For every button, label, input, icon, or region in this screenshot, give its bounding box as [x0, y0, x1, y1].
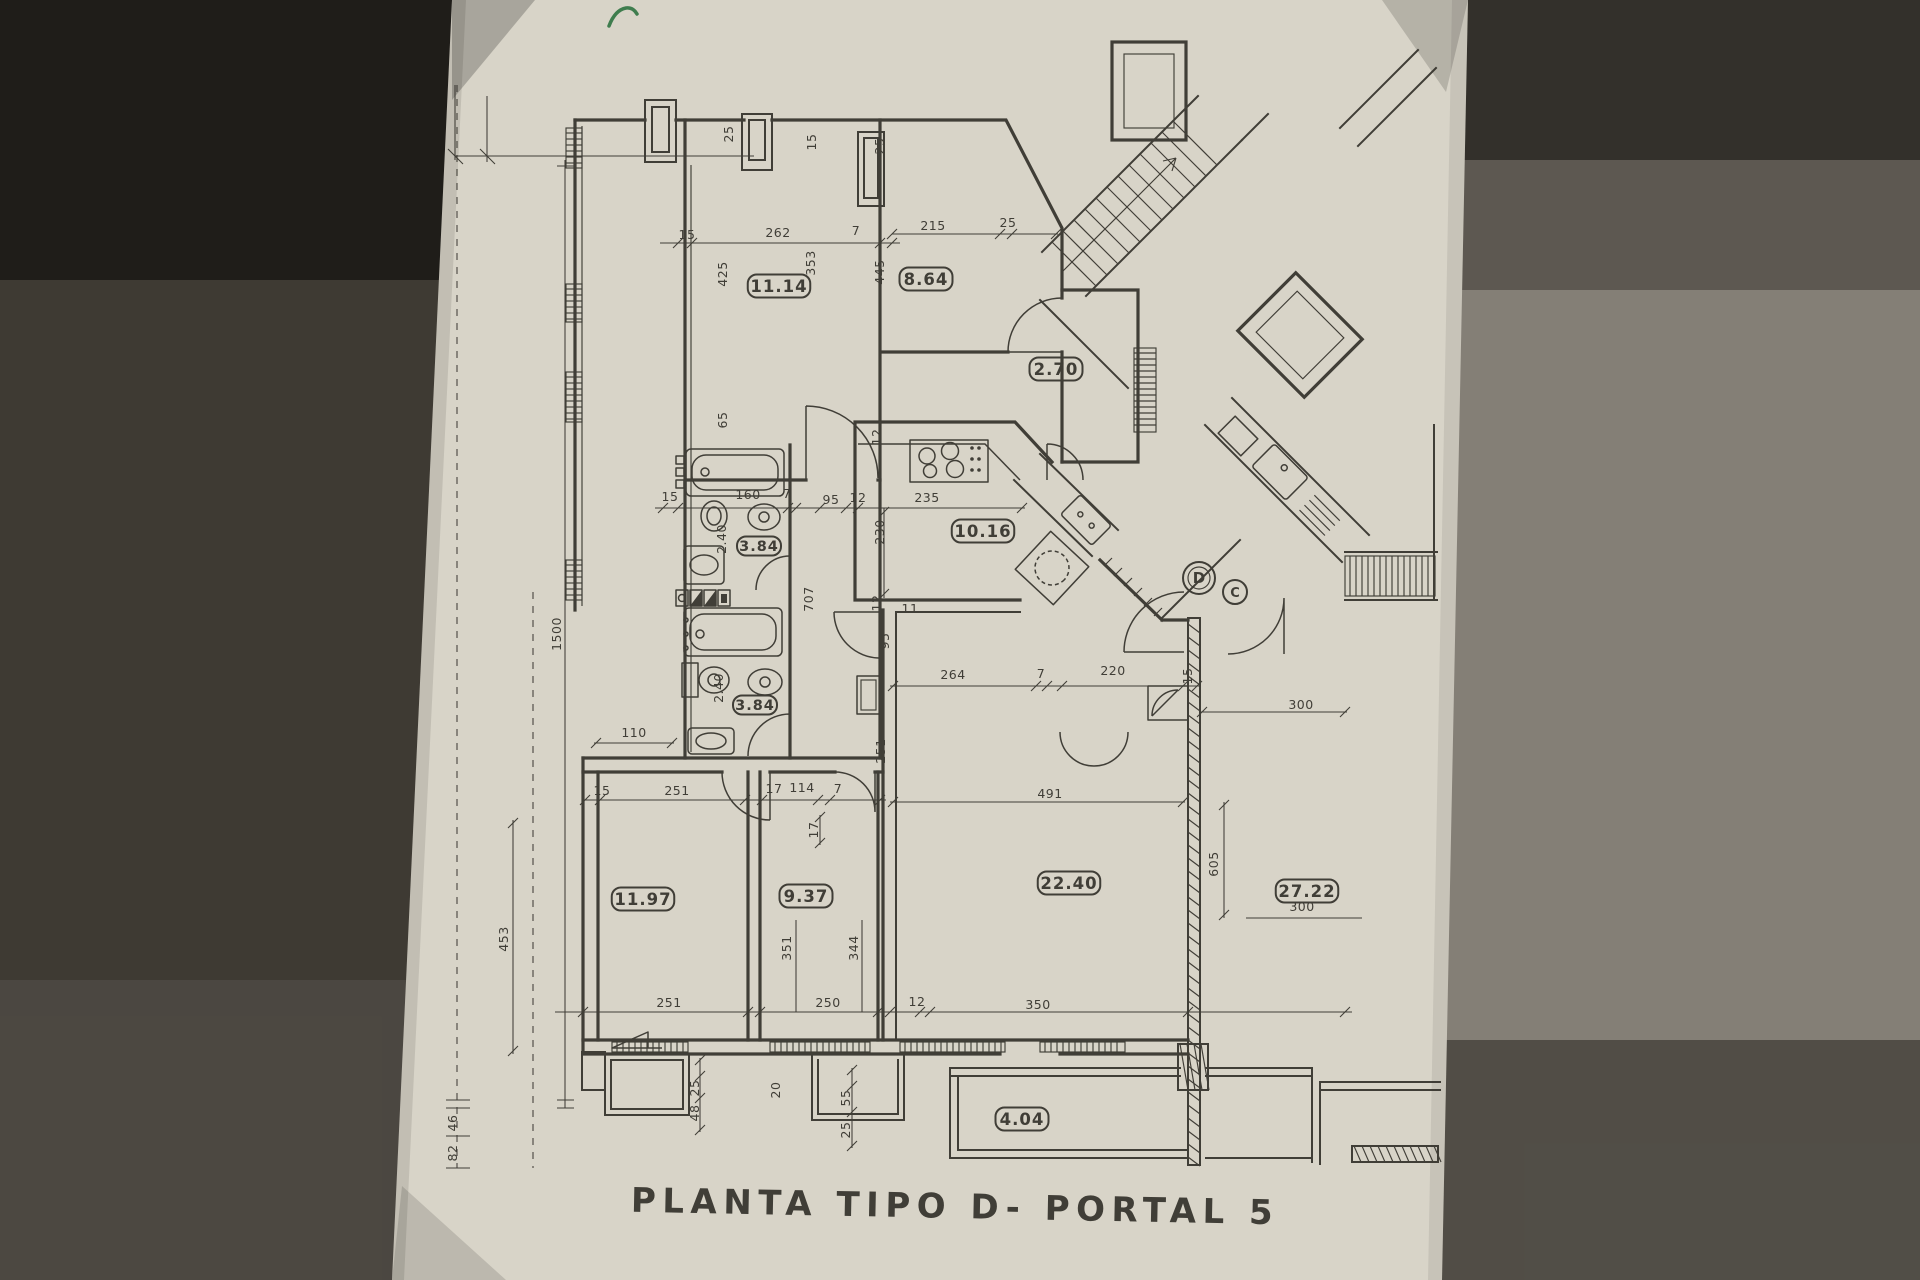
dimension-label: 351 — [779, 935, 794, 960]
floor-plan-drawing: 2515251526272152542535344565121516079512… — [0, 0, 1920, 1280]
dimension-label: 215 — [920, 218, 945, 233]
svg-text:C: C — [1230, 586, 1240, 601]
dimension-label: 230 — [872, 519, 887, 544]
photographed-floor-plan: 2515251526272152542535344565121516079512… — [0, 0, 1920, 1280]
dimension-label: 25 — [1000, 215, 1017, 230]
dimension-label: 12 — [850, 490, 867, 505]
dimension-label: 15 — [662, 489, 679, 504]
room-area-label: 9.37 — [780, 885, 833, 908]
svg-text:2.70: 2.70 — [1034, 360, 1079, 379]
dimension-label: 251 — [664, 783, 689, 798]
dimension-label: 7 — [834, 781, 842, 796]
dimension-label: 48 — [687, 1105, 702, 1122]
room-area-label: 10.16 — [952, 520, 1015, 543]
svg-text:D: D — [1193, 569, 1205, 587]
dimension-label: 12 — [869, 595, 884, 612]
dimension-label: 344 — [846, 935, 861, 960]
room-area-label: 11.14 — [748, 275, 811, 298]
dimension-label: 1500 — [549, 617, 564, 651]
dimension-label: 707 — [801, 586, 816, 611]
dimension-label: 235 — [914, 490, 939, 505]
shadow-top-right — [1430, 0, 1920, 160]
dimension-label: 12 — [909, 994, 926, 1009]
svg-text:3.84: 3.84 — [739, 539, 779, 555]
dimension-label: 95 — [877, 633, 892, 650]
svg-text:8.64: 8.64 — [904, 270, 949, 289]
room-area-label: 4.04 — [996, 1108, 1049, 1131]
dimension-label: 95 — [823, 492, 840, 507]
svg-text:11.97: 11.97 — [614, 890, 671, 909]
svg-text:3.84: 3.84 — [735, 698, 775, 714]
dimension-label: 15 — [1180, 668, 1195, 685]
room-area-label: 22.40 — [1038, 872, 1101, 895]
svg-text:4.04: 4.04 — [1000, 1110, 1045, 1129]
dimension-label: 46 — [445, 1115, 460, 1132]
dimension-label: 82 — [445, 1145, 460, 1162]
dimension-label: 110 — [621, 725, 646, 740]
dimension-label: 2.40 — [711, 673, 726, 703]
door-letter-marker: D — [1183, 562, 1215, 594]
svg-text:9.37: 9.37 — [784, 887, 829, 906]
dimension-label: 11 — [902, 601, 919, 616]
dimension-label: 2.40 — [714, 524, 729, 554]
dimension-label: 20 — [768, 1082, 783, 1099]
dimension-label: 350 — [1025, 997, 1050, 1012]
svg-text:11.14: 11.14 — [750, 277, 807, 296]
dimension-label: 7 — [1037, 666, 1045, 681]
dimension-label: 15 — [804, 134, 819, 151]
dimension-label: 264 — [940, 667, 965, 682]
dimension-label: 300 — [1288, 697, 1313, 712]
dimension-label: 251 — [656, 995, 681, 1010]
dimension-label: 25 — [872, 138, 887, 155]
dimension-label: 7 — [783, 486, 791, 501]
dimension-label: 25 — [721, 126, 736, 143]
svg-text:27.22: 27.22 — [1278, 882, 1335, 901]
dimension-label: 17 — [766, 781, 783, 796]
dimension-label: 114 — [789, 780, 814, 795]
svg-text:10.16: 10.16 — [954, 522, 1011, 541]
dimension-label: 262 — [765, 225, 790, 240]
dimension-label: 7 — [852, 223, 860, 238]
dimension-label: 605 — [1206, 851, 1221, 876]
dimension-label: 55 — [838, 1090, 853, 1107]
dimension-label: 220 — [1100, 663, 1125, 678]
room-area-label: 8.64 — [900, 268, 953, 291]
dimension-label: 17 — [806, 822, 821, 839]
room-area-label: 2.70 — [1030, 358, 1083, 381]
dimension-label: 445 — [872, 259, 887, 284]
dimension-label: 491 — [1037, 786, 1062, 801]
room-area-label: 3.84 — [733, 696, 777, 715]
dimension-label: 353 — [803, 250, 818, 275]
shadow-top-right-2 — [1430, 160, 1920, 290]
svg-text:22.40: 22.40 — [1040, 874, 1097, 893]
dimension-label: 250 — [815, 995, 840, 1010]
dimension-label: 25 — [838, 1122, 853, 1139]
dimension-label: 15 — [679, 227, 696, 242]
dimension-label: 15 — [594, 783, 611, 798]
dimension-label: 160 — [735, 487, 760, 502]
dimension-label: 25 — [687, 1080, 702, 1097]
shadow-bottom-right — [1430, 1040, 1920, 1280]
shadow-top-left — [0, 0, 470, 280]
dimension-label: 65 — [715, 412, 730, 429]
dimension-label: 12 — [869, 429, 884, 446]
dimension-label: 251 — [873, 738, 888, 763]
room-area-label: 11.97 — [612, 888, 675, 911]
dimension-label: 300 — [1289, 899, 1314, 914]
room-area-label: 27.22 — [1276, 880, 1339, 903]
dimension-label: 453 — [496, 926, 511, 951]
room-area-label: 3.84 — [737, 537, 781, 556]
dimension-label: 425 — [715, 261, 730, 286]
